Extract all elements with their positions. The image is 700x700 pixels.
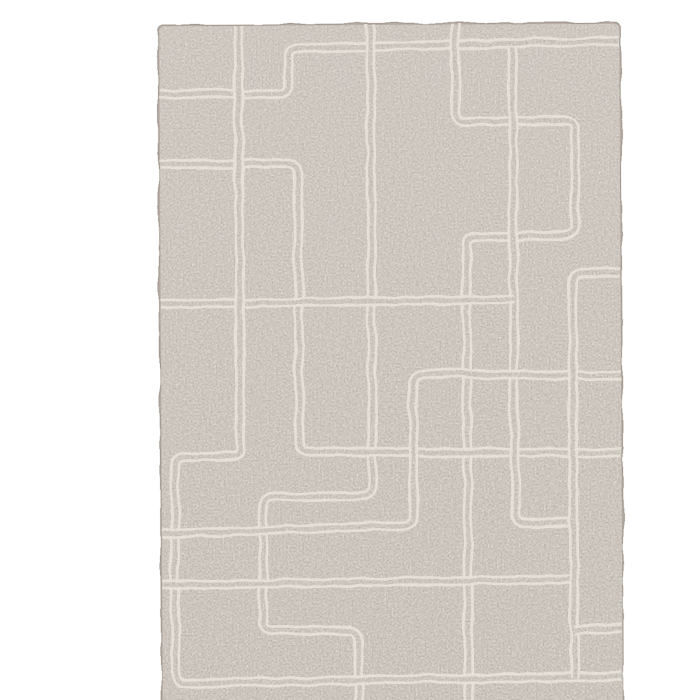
rug-wool-texture-dark (160, 25, 622, 700)
rug-svg (40, 16, 700, 700)
rug-image (154, 19, 626, 700)
product-photo-canvas (40, 16, 700, 700)
